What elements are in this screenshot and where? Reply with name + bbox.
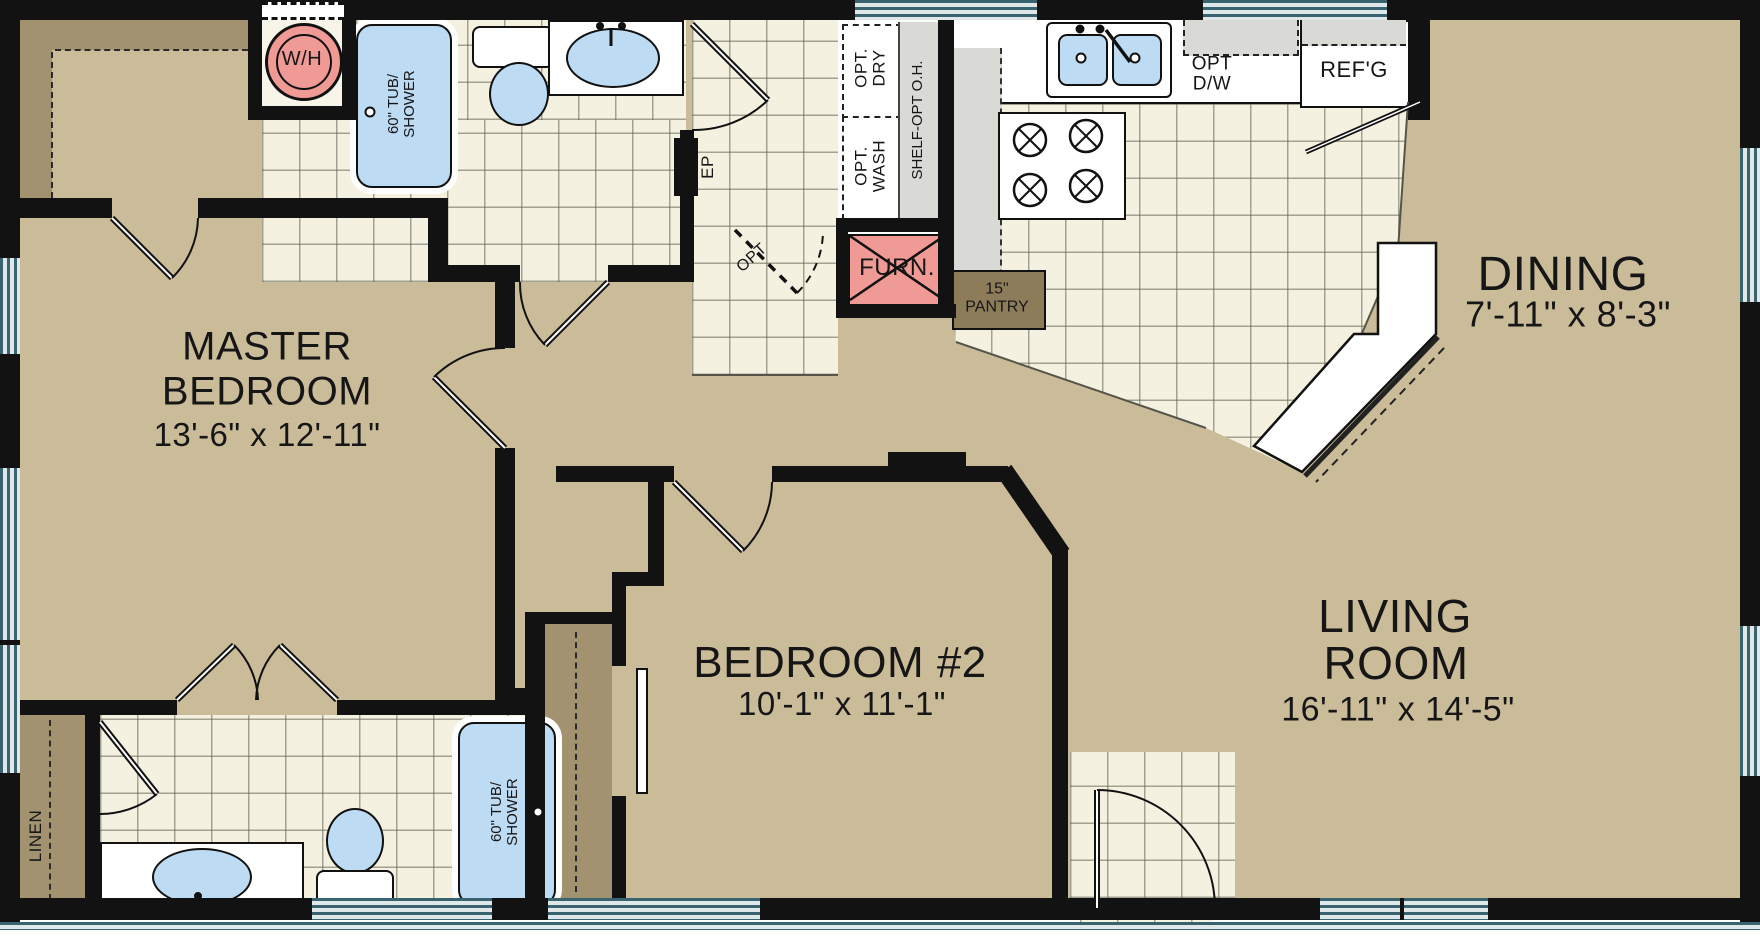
bedroom2-closet-rod bbox=[575, 632, 577, 892]
kitchen-sink-bowl-right bbox=[1112, 34, 1162, 86]
wall bbox=[248, 106, 356, 120]
wall bbox=[525, 612, 545, 905]
wall bbox=[248, 20, 262, 110]
toilet2-bowl bbox=[326, 808, 384, 874]
wall bbox=[428, 265, 520, 282]
dishwasher-opt bbox=[1183, 20, 1299, 56]
bedroom2-label: BEDROOM #2 bbox=[693, 639, 987, 687]
floor-plan: MASTER BEDROOM 13'-6" x 12'-11" BEDROOM … bbox=[0, 0, 1760, 936]
tub1-label: 60" TUB/SHOWER bbox=[386, 70, 418, 138]
dryer-label-line1: OPT. bbox=[852, 48, 871, 88]
master-closet-left bbox=[20, 20, 52, 198]
linen-closet bbox=[20, 712, 86, 905]
linen-rod bbox=[49, 720, 51, 900]
master-bedroom-label-1: MASTER bbox=[182, 325, 352, 368]
wall bbox=[0, 0, 20, 922]
window bbox=[548, 898, 760, 920]
window bbox=[1740, 626, 1760, 776]
wall bbox=[337, 700, 527, 715]
wall bbox=[836, 304, 956, 318]
washer-label-line1: OPT. bbox=[852, 146, 871, 186]
wall bbox=[836, 218, 954, 232]
washer-label-line2: WASH bbox=[870, 140, 889, 192]
closet-rod bbox=[55, 49, 248, 51]
wall bbox=[495, 282, 515, 348]
bedroom2-dims: 10'-1" x 11'-1" bbox=[738, 686, 946, 722]
refrigerator-top-cabinet bbox=[1302, 20, 1406, 46]
window bbox=[0, 258, 20, 354]
tub2-label-line2: SHOWER bbox=[504, 778, 521, 846]
wall bbox=[612, 796, 626, 905]
wall bbox=[198, 198, 448, 218]
tub2-label: 60" TUB/SHOWER bbox=[489, 778, 521, 846]
dryer-label: OPT.DRY bbox=[853, 48, 890, 88]
wall bbox=[0, 898, 1760, 920]
wall bbox=[20, 700, 177, 715]
closet-rod bbox=[51, 52, 53, 198]
wall bbox=[648, 480, 664, 580]
window bbox=[1203, 0, 1387, 20]
wall bbox=[772, 466, 890, 482]
window bbox=[0, 468, 20, 640]
kitchen-sink-bowl-left bbox=[1058, 34, 1108, 86]
furnace-label: FURN. bbox=[859, 255, 935, 281]
window bbox=[1320, 898, 1400, 920]
wall bbox=[836, 232, 848, 304]
master-bedroom-label-2: BEDROOM bbox=[162, 370, 372, 413]
pantry-size-label: 15" bbox=[985, 280, 1008, 297]
electrical-panel-box bbox=[674, 138, 698, 196]
wall bbox=[20, 198, 112, 218]
wall bbox=[938, 20, 954, 318]
stove bbox=[998, 112, 1126, 220]
wall bbox=[960, 466, 1008, 482]
wall bbox=[1408, 20, 1430, 120]
closet-slider-panel bbox=[636, 668, 648, 794]
window bbox=[1740, 148, 1760, 302]
tub1-label-line1: 60" TUB/ bbox=[385, 74, 402, 134]
pantry-label: PANTRY bbox=[965, 298, 1028, 315]
entry-floor bbox=[1070, 752, 1235, 898]
window bbox=[1404, 898, 1488, 920]
wall bbox=[612, 586, 626, 666]
linen-label: LINEN bbox=[27, 810, 45, 863]
wall bbox=[545, 612, 615, 624]
wall bbox=[1052, 548, 1068, 900]
ground-line bbox=[0, 922, 1760, 930]
wall bbox=[495, 448, 515, 690]
vent-opening bbox=[262, 2, 344, 20]
tub1-label-line2: SHOWER bbox=[401, 70, 418, 138]
dryer-label-line2: DRY bbox=[870, 49, 889, 86]
dishwasher-label-1: OPT bbox=[1192, 55, 1233, 76]
master-closet-top bbox=[20, 20, 248, 50]
dishwasher-label-2: D/W bbox=[1193, 75, 1231, 96]
master-bedroom-dims: 13'-6" x 12'-11" bbox=[154, 417, 381, 453]
living-room-label-2: ROOM bbox=[1323, 639, 1468, 689]
tub2-label-line1: 60" TUB/ bbox=[488, 782, 505, 842]
wall bbox=[85, 715, 100, 907]
wall bbox=[1740, 0, 1760, 922]
window bbox=[855, 0, 1037, 20]
electrical-panel-label: EP bbox=[699, 155, 717, 179]
window bbox=[312, 898, 492, 920]
toilet1-bowl bbox=[489, 62, 549, 126]
water-heater-label: W/H bbox=[282, 49, 322, 71]
living-room-dims: 16'-11" x 14'-5" bbox=[1281, 692, 1515, 729]
refrigerator-label: REF'G bbox=[1320, 58, 1388, 82]
wall bbox=[342, 20, 356, 110]
wall bbox=[612, 572, 664, 586]
living-room-label-1: LIVING bbox=[1318, 592, 1472, 642]
wall bbox=[888, 452, 966, 482]
dining-dims: 7'-11" x 8'-3" bbox=[1465, 296, 1671, 335]
washer-label: OPT.WASH bbox=[853, 140, 890, 192]
shelf-label: SHELF-OPT O.H. bbox=[910, 61, 926, 180]
hall-floor bbox=[692, 20, 838, 375]
bath1-sink bbox=[566, 28, 660, 88]
window bbox=[0, 645, 20, 773]
